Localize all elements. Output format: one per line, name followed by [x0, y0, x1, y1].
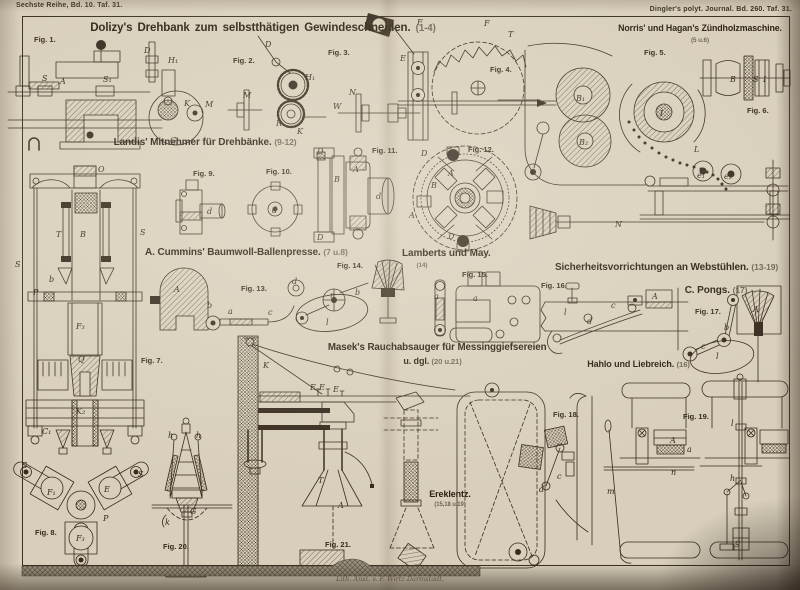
part-label: H₁ — [167, 56, 178, 65]
part-label: b — [49, 275, 54, 284]
fig19-drawing — [604, 374, 790, 563]
part-label: S — [42, 74, 48, 83]
part-label: n — [671, 468, 676, 477]
fig3-drawing — [338, 42, 526, 134]
fig-label-3: Fig. 3. — [328, 48, 350, 57]
fig-label-18: Fig. 18. — [553, 410, 579, 419]
title-text: Sicherheitsvorrichtungen an Webstühlen. — [555, 262, 749, 273]
part-label: K — [296, 127, 304, 136]
part-label: S — [140, 228, 146, 237]
section-title-landis: Landis' Mitnehmer für Drehbänke. (9-12) — [105, 137, 305, 148]
part-label: A — [173, 285, 180, 294]
fig-label-6: Fig. 6. — [747, 106, 769, 115]
fig8-drawing — [11, 459, 151, 567]
part-label: d — [376, 192, 381, 201]
part-label: K₂ — [75, 407, 85, 416]
part-label: B₁ — [575, 94, 585, 103]
part-label: h — [168, 431, 173, 440]
part-label: l — [731, 419, 734, 428]
part-label: e₁ — [697, 171, 705, 180]
part-label: a — [228, 307, 233, 316]
fig-label-2: Fig. 2. — [233, 56, 255, 65]
part-label: E — [399, 54, 406, 63]
part-label: d — [207, 207, 212, 216]
section-title-pongs: C. Pongs. (17) — [676, 285, 756, 296]
part-label: b — [724, 323, 729, 332]
fig-label-8: Fig. 8. — [35, 528, 57, 537]
ereklentz-frame-drawing — [457, 383, 545, 568]
part-label: c — [701, 342, 706, 351]
part-label: F₃ — [75, 534, 85, 543]
section-figs-norris: (5 u.6) — [610, 35, 790, 44]
title-figs: (16) — [677, 360, 690, 369]
title-text: u. dgl. — [403, 356, 429, 366]
part-label: A — [447, 169, 454, 178]
part-label: F — [483, 19, 490, 28]
title-text: Landis' Mitnehmer für Drehbänke. — [114, 137, 272, 148]
part-label: d — [272, 206, 277, 215]
fig-label-16: Fig. 16. — [541, 281, 567, 290]
section-figs-lamberts: (14) — [402, 260, 442, 269]
fig12-drawing — [413, 146, 517, 251]
part-label: S — [22, 461, 28, 470]
part-label: A — [669, 436, 676, 445]
title-figs: (9-12) — [274, 137, 296, 147]
part-label: A — [352, 165, 359, 174]
part-label: A — [337, 501, 344, 510]
part-label: E — [318, 383, 325, 392]
fig6-drawing — [700, 56, 790, 100]
part-label: b — [355, 288, 360, 297]
part-label: S — [15, 260, 21, 269]
part-label: l — [716, 352, 719, 361]
fig-label-19: Fig. 19. — [683, 412, 709, 421]
part-label: B₂ — [578, 138, 588, 147]
title-text: Norris' und Hagan's Zündholzmaschine. — [618, 23, 782, 33]
part-label: D — [316, 147, 324, 156]
part-label: W — [333, 102, 342, 111]
title-figs: (13-19) — [751, 262, 778, 272]
part-label: H₁ — [304, 73, 315, 82]
fig-label-9: Fig. 9. — [193, 169, 215, 178]
lithographer-credit: Lith. Anst. v. F. Wirtz Darmstadt. — [330, 575, 450, 583]
part-label: B — [333, 175, 340, 184]
part-label: a — [434, 292, 439, 301]
title-figs: (17) — [733, 285, 748, 295]
part-label: F₃ — [75, 322, 85, 331]
fig17-drawing — [683, 286, 781, 382]
title-text: Ereklentz. — [429, 489, 471, 499]
part-label: K — [183, 99, 191, 108]
title-figs: (14) — [417, 262, 428, 269]
title-text: Masek's Rauchabsauger für Messinggiefser… — [328, 341, 547, 353]
part-label: k — [165, 518, 170, 527]
fig-label-13: Fig. 13. — [241, 284, 267, 293]
section-title-lamberts: Lamberts und May. — [402, 248, 490, 259]
part-label: h — [196, 431, 201, 440]
part-label: P — [32, 288, 39, 297]
fig-label-1: Fig. 1. — [34, 35, 56, 44]
fig13-drawing — [150, 268, 304, 330]
part-label: N — [614, 220, 623, 229]
part-label: D — [447, 232, 455, 241]
title-text: A. Cummins' Baumwoll-Ballenpresse. — [145, 247, 321, 258]
part-label: d — [539, 485, 544, 494]
part-label: T — [508, 30, 514, 39]
part-label: A — [752, 305, 759, 314]
part-label: A — [651, 292, 658, 301]
part-label: S₁ — [103, 75, 112, 84]
fig-label-5: Fig. 5. — [644, 48, 666, 57]
part-label: a — [687, 445, 692, 454]
part-label: M — [204, 100, 214, 109]
part-label: S — [753, 75, 759, 84]
part-label: P — [102, 514, 109, 523]
part-label: d — [587, 317, 592, 326]
part-label: N — [348, 88, 357, 97]
title-figs: (7 u.8) — [323, 247, 347, 257]
fig20-drawing — [152, 418, 232, 577]
title-text: Lamberts und May. — [402, 248, 491, 259]
part-label: F₁ — [46, 488, 56, 497]
part-label: D — [316, 233, 324, 242]
part-label: d — [292, 277, 297, 286]
section-title-masek: Masek's Rauchabsauger für Messinggiefser… — [328, 341, 537, 353]
fig11-drawing — [314, 148, 394, 242]
fig14-drawing — [294, 260, 404, 336]
journal-ref: Dingler's polyt. Journal. Bd. 260. Taf. … — [650, 6, 792, 13]
title-text: Hahlo und Liebreich. — [587, 359, 674, 369]
part-label: D — [143, 46, 151, 55]
part-label: T — [318, 476, 324, 485]
part-label: A — [59, 77, 66, 86]
part-label: e₂ — [724, 172, 732, 181]
part-label: l — [326, 318, 329, 327]
part-label: S — [138, 470, 144, 479]
section-title-dolizy: Dolizy's Drehbank zum selbstthätigen Gew… — [58, 22, 468, 34]
title-text: Dolizy's Drehbank zum selbstthätigen Gew… — [90, 22, 410, 34]
fig-label-7: Fig. 7. — [141, 356, 163, 365]
part-label: K — [262, 361, 270, 370]
part-label: Q — [78, 355, 85, 364]
fig-label-14: Fig. 14. — [337, 261, 363, 270]
part-label: h — [730, 474, 735, 483]
title-figs: (20 u.21) — [432, 357, 462, 366]
plate-page: A S S₁ D H₁ K M G D M H₁ K R N W F F T E… — [0, 0, 800, 590]
title-figs: (5 u.6) — [691, 37, 709, 44]
part-label: L — [693, 145, 699, 154]
title-text: C. Pongs. — [685, 285, 730, 296]
part-label: C₁ — [42, 427, 51, 436]
part-label: B — [729, 75, 736, 84]
part-label: D — [264, 40, 272, 49]
part-label: T — [56, 230, 62, 239]
fig-label-10: Fig. 10. — [266, 167, 292, 176]
section-title-hahlo: Hahlo und Liebreich. (16) — [586, 359, 691, 369]
part-label: c — [557, 472, 562, 481]
part-label: c — [268, 308, 273, 317]
part-label: b — [207, 301, 212, 310]
part-label: g — [735, 538, 740, 547]
part-label: I — [762, 75, 767, 84]
fig2-drawing — [228, 36, 326, 130]
fig9-drawing — [176, 180, 225, 234]
fig21-drawing — [238, 336, 470, 571]
section-title-cummins: A. Cummins' Baumwoll-Ballenpresse. (7 u.… — [145, 247, 335, 258]
part-label: m — [607, 487, 615, 496]
part-label: R — [275, 119, 282, 128]
fig15-drawing — [435, 272, 541, 342]
section-title2-masek: u. dgl. (20 u.21) — [320, 356, 545, 366]
series-ref: Sechste Reihe, Bd. 10. Taf. 31. — [16, 2, 122, 9]
part-label: a — [473, 294, 478, 303]
title-figs: (15,18 u.19) — [434, 502, 465, 508]
section-title-norris: Norris' und Hagan's Zündholzmaschine. — [610, 23, 790, 33]
fig-label-11: Fig. 11. — [372, 146, 397, 155]
section-title-ereklentz: Ereklentz. — [424, 489, 476, 499]
part-label: G — [190, 507, 197, 516]
part-label: E — [332, 385, 339, 394]
part-label: c — [611, 301, 616, 310]
fig16-drawing — [541, 283, 688, 354]
section-title-webstuehle: Sicherheitsvorrichtungen an Webstühlen. … — [554, 262, 779, 273]
part-label: D — [420, 149, 428, 158]
part-label: n — [330, 291, 335, 300]
part-label: E — [103, 485, 110, 494]
fig-label-12: Fig. 12. — [468, 145, 494, 154]
fig-label-17: Fig. 17. — [695, 307, 721, 316]
fig-label-20: Fig. 20. — [163, 542, 189, 551]
part-label: M — [242, 91, 252, 100]
part-label: E — [309, 383, 316, 392]
part-label: B — [79, 230, 86, 239]
section-figs-ereklentz: (15,18 u.19) — [420, 501, 480, 508]
fig-label-21: Fig. 21. — [325, 540, 351, 549]
part-label: B — [430, 181, 437, 190]
part-label: O — [98, 165, 105, 174]
part-label: A — [408, 211, 415, 220]
fig-label-15: Fig. 15. — [462, 270, 488, 279]
part-label: l — [564, 308, 567, 317]
title-figs: (1-4) — [416, 23, 436, 34]
fig-label-4: Fig. 4. — [490, 65, 512, 74]
